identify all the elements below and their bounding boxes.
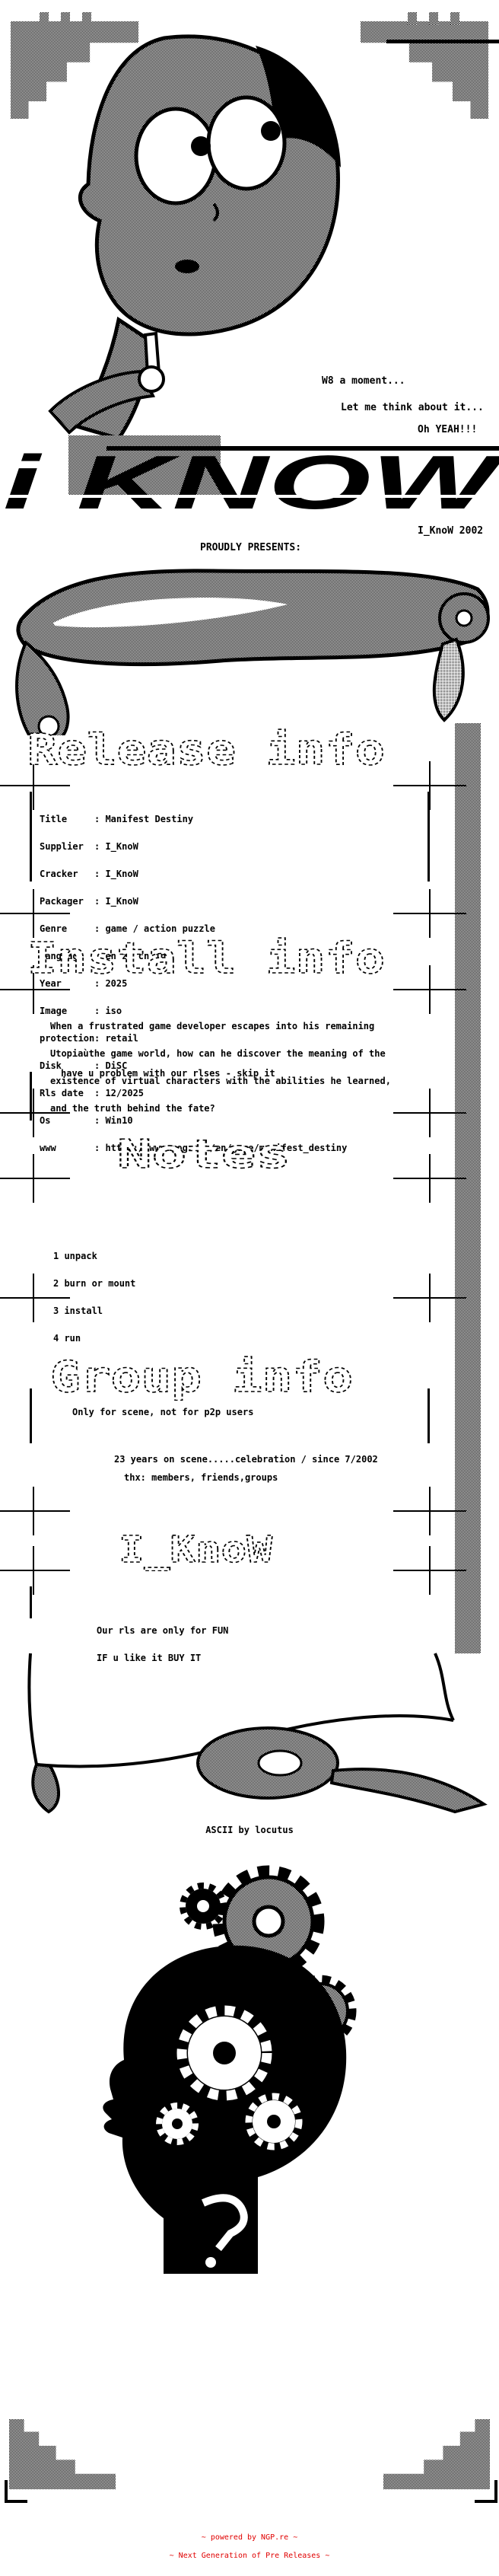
sheet-left-edge	[29, 1653, 37, 1765]
crop-mark	[393, 1274, 466, 1322]
game-description: When a frustrated game developer escapes…	[50, 1003, 391, 1131]
release-info-heading-art: Release info	[21, 725, 394, 773]
ornament-tooth	[450, 12, 459, 24]
field-value: I_KnoW	[105, 841, 138, 852]
anniversary-note: 23 years on scene.....celebration / sinc…	[114, 1455, 378, 1464]
scroll-rail	[30, 792, 32, 882]
field-value: I_KnoW	[105, 869, 138, 879]
mouth	[175, 260, 199, 273]
step: 1 unpack	[53, 1251, 135, 1261]
group-info-heading: Group info	[50, 1353, 353, 1401]
scroll-rail	[30, 1072, 32, 1121]
table-row: Packager: I_KnoW	[40, 897, 347, 906]
right-pupil	[261, 121, 281, 141]
iknow-signoff-heading: I_KnoW	[119, 1529, 272, 1571]
corner-ornament-bottom-right	[383, 2419, 490, 2489]
logo-caption: I_KnoW 2002	[418, 526, 483, 536]
table-row: Genre: game / action puzzle	[40, 924, 347, 933]
install-info-heading-art: Install info	[21, 933, 394, 982]
thanks-note: thx: members, friends,groups	[124, 1473, 278, 1482]
field-value: Manifest Destiny	[105, 814, 193, 824]
corner-bracket-left	[5, 2480, 27, 2503]
scroll-right-tail	[434, 639, 463, 720]
field-value: game / action puzzle	[105, 923, 215, 934]
crop-mark	[393, 1154, 466, 1203]
top-rule	[386, 40, 499, 43]
sheet-right-edge	[435, 1653, 453, 1720]
release-info-heading: Release info	[27, 725, 385, 773]
parchment-scroll-top-art	[0, 553, 499, 735]
bottom-roll-tail-left	[33, 1765, 59, 1812]
bottom-roll-core	[259, 1751, 301, 1775]
bottom-roll-tail-right	[332, 1769, 484, 1812]
footer-ngp-tagline: ~ Next Generation of Pre Releases ~	[0, 2552, 499, 2561]
footer-powered-by: ~ powered by NGP.re ~	[0, 2533, 499, 2543]
iknow-signoff-heading-art: I_KnoW	[113, 1527, 280, 1571]
gear-small	[183, 1886, 224, 1927]
iknow-logo-art: i KNOW	[0, 429, 499, 530]
right-eye	[208, 97, 284, 189]
scroll-rail	[30, 1388, 32, 1443]
speech-line-2: Let me think about it...	[341, 403, 484, 413]
crop-mark	[393, 889, 466, 938]
right-roll-core	[456, 611, 472, 626]
crop-mark	[0, 1487, 70, 1535]
nfo-page: W8 a moment... Let me think about it... …	[0, 0, 499, 2576]
table-row: Supplier: I_KnoW	[40, 842, 347, 851]
left-pupil	[191, 136, 211, 156]
scene-note: Only for scene, not for p2p users	[72, 1408, 253, 1417]
skip-note: have u problem with our rlses - skip it	[61, 1069, 275, 1078]
install-info-heading: Install info	[27, 934, 385, 982]
field-value: I_KnoW	[105, 896, 138, 907]
thinking-cartoon-head-art	[5, 15, 362, 438]
parchment-scroll-bottom-art	[0, 1650, 499, 1822]
logo-slit	[0, 495, 499, 498]
speech-line-1: W8 a moment...	[322, 376, 405, 386]
corner-ornament-bottom-left	[9, 2419, 116, 2489]
crop-mark	[393, 1487, 466, 1535]
notes-heading-art: Notes	[111, 1131, 297, 1177]
crop-mark	[0, 1546, 70, 1595]
question-dot	[205, 2257, 216, 2268]
crop-mark	[393, 1546, 466, 1595]
scroll-rail	[30, 1586, 32, 1618]
table-row: Title: Manifest Destiny	[40, 815, 347, 824]
corner-ornament-top-right	[361, 21, 488, 119]
crop-mark	[393, 761, 466, 810]
table-row: Cracker: I_KnoW	[40, 869, 347, 878]
corner-bracket-right	[475, 2480, 497, 2503]
scroll-rail	[427, 1388, 430, 1443]
step: 4 run	[53, 1334, 135, 1343]
ascii-credit: ASCII by locutus	[0, 1825, 499, 1835]
deco-square	[319, 2084, 335, 2099]
step: 3 install	[53, 1306, 135, 1315]
crop-mark	[393, 1089, 466, 1137]
scroll-rail	[427, 792, 430, 882]
left-eye	[136, 109, 215, 203]
ornament-tooth	[408, 12, 417, 24]
crop-mark	[393, 965, 466, 1014]
step: 2 burn or mount	[53, 1279, 135, 1288]
notes-heading: Notes	[117, 1132, 291, 1177]
hand	[139, 367, 164, 391]
proudly-presents: PROUDLY PRESENTS:	[200, 543, 301, 553]
head-silhouette	[103, 1946, 346, 2274]
ornament-tooth	[429, 12, 438, 24]
gears-head-art	[42, 1859, 361, 2274]
group-info-heading-art: Group info	[44, 1352, 361, 1401]
install-steps: 1 unpack 2 burn or mount 3 install 4 run	[53, 1233, 135, 1361]
iknow-logo-text: i KNOW	[3, 440, 499, 525]
